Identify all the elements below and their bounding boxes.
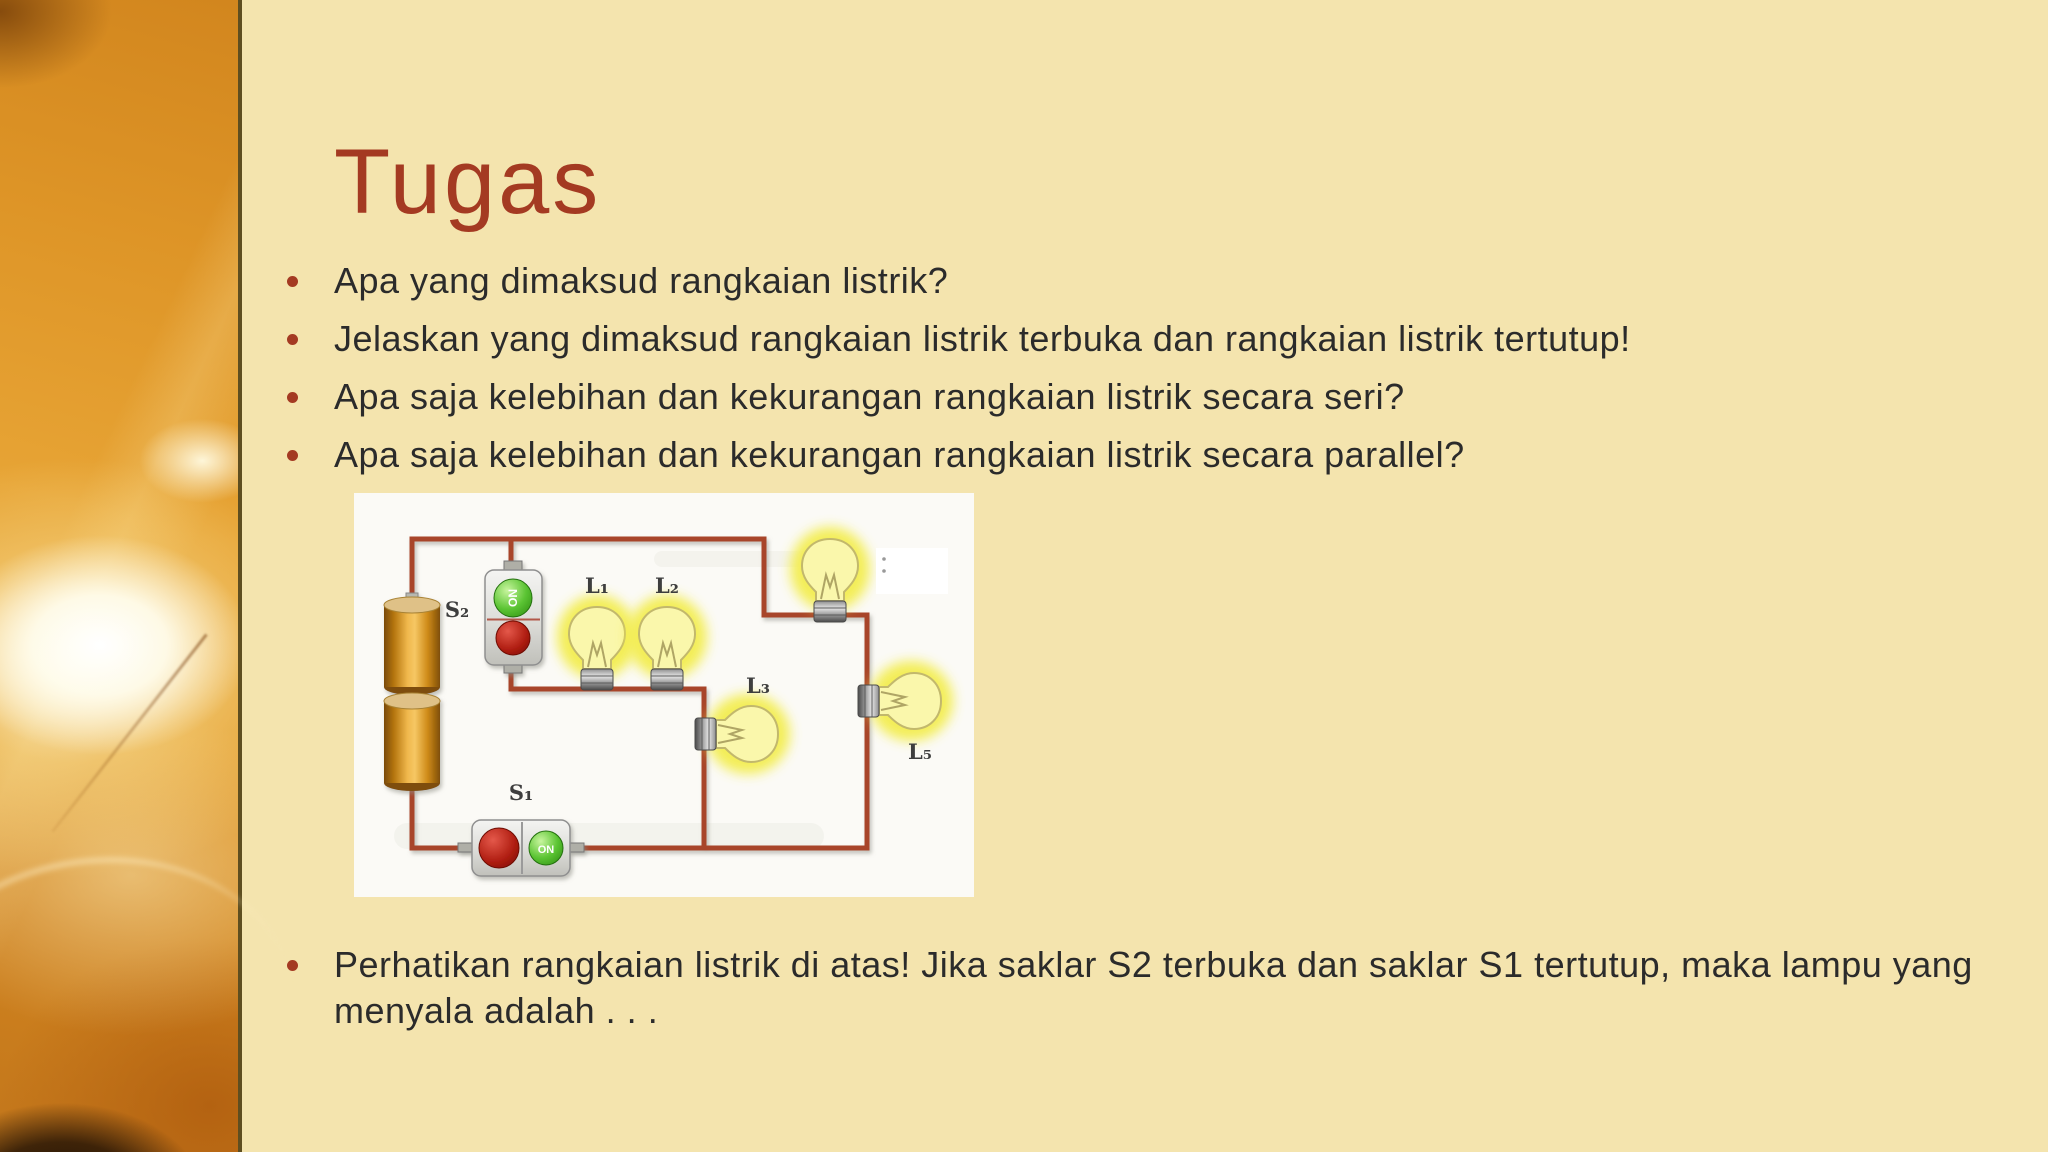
bullet-dot-icon bbox=[287, 392, 298, 403]
question-text: Perhatikan rangkaian listrik di atas! Ji… bbox=[334, 942, 2034, 1034]
sidebar-lightbulb-photo bbox=[0, 0, 242, 1152]
bullet-dot-icon bbox=[287, 334, 298, 345]
question-item: Perhatikan rangkaian listrik di atas! Ji… bbox=[287, 942, 2034, 1034]
circuit-diagram-image: ON ON S₂ S₁ L₁ L₂ L₃ L₅ bbox=[354, 493, 974, 897]
lamp-l1-label: L₁ bbox=[585, 573, 609, 598]
white-cover-box bbox=[876, 548, 948, 594]
list-item: Apa yang dimaksud rangkaian listrik? bbox=[287, 258, 2007, 304]
switch-s1-on-label: ON bbox=[538, 844, 555, 856]
list-item: Apa saja kelebihan dan kekurangan rangka… bbox=[287, 432, 2007, 478]
presentation-slide: Tugas Apa yang dimaksud rangkaian listri… bbox=[0, 0, 2048, 1152]
bullet-text: Jelaskan yang dimaksud rangkaian listrik… bbox=[334, 316, 1631, 362]
switch-s2: ON bbox=[485, 561, 542, 673]
bulb-filament-decoration bbox=[51, 634, 207, 833]
bullet-dot-icon bbox=[287, 960, 298, 971]
list-item: Apa saja kelebihan dan kekurangan rangka… bbox=[287, 374, 2007, 420]
bulb-glass-arc-decoration bbox=[0, 814, 335, 1152]
bullet-text: Apa saja kelebihan dan kekurangan rangka… bbox=[334, 432, 1465, 478]
bullet-dot-icon bbox=[287, 450, 298, 461]
lamp-l2-label: L₂ bbox=[655, 573, 679, 598]
bullet-text: Apa yang dimaksud rangkaian listrik? bbox=[334, 258, 948, 304]
switch-s2-on-label: ON bbox=[506, 589, 520, 607]
switch-s1: ON bbox=[458, 820, 584, 876]
lamp-l3-label: L₃ bbox=[746, 673, 770, 698]
battery-icon bbox=[384, 593, 440, 791]
lamp-l5-label: L₅ bbox=[908, 739, 932, 764]
page-title: Tugas bbox=[334, 132, 601, 233]
switch-s2-red-button bbox=[496, 621, 530, 655]
switch-s1-red-button bbox=[479, 828, 519, 868]
bullet-list: Apa yang dimaksud rangkaian listrik? Jel… bbox=[287, 258, 2007, 490]
switch-s1-label: S₁ bbox=[509, 780, 533, 805]
list-item: Jelaskan yang dimaksud rangkaian listrik… bbox=[287, 316, 2007, 362]
bullet-text: Apa saja kelebihan dan kekurangan rangka… bbox=[334, 374, 1405, 420]
switch-s2-label: S₂ bbox=[445, 597, 469, 622]
bullet-dot-icon bbox=[287, 276, 298, 287]
